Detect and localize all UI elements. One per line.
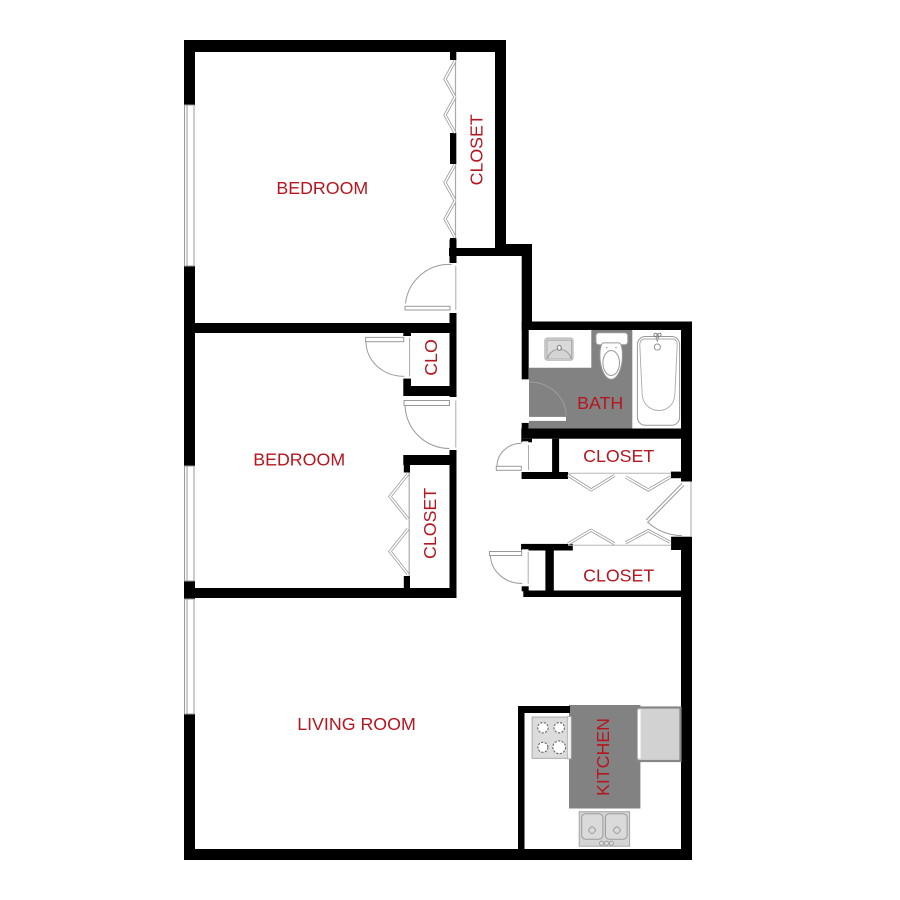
svg-text:CLO: CLO xyxy=(421,339,441,376)
svg-text:KITCHEN: KITCHEN xyxy=(593,718,613,796)
svg-text:CLOSET: CLOSET xyxy=(583,566,654,586)
svg-text:CLOSET: CLOSET xyxy=(420,488,440,559)
svg-text:CLOSET: CLOSET xyxy=(467,114,487,185)
svg-text:CLOSET: CLOSET xyxy=(583,446,654,466)
svg-text:LIVING ROOM: LIVING ROOM xyxy=(297,714,416,734)
svg-text:BATH: BATH xyxy=(577,393,623,413)
svg-text:BEDROOM: BEDROOM xyxy=(276,178,368,198)
svg-text:BEDROOM: BEDROOM xyxy=(253,450,345,470)
